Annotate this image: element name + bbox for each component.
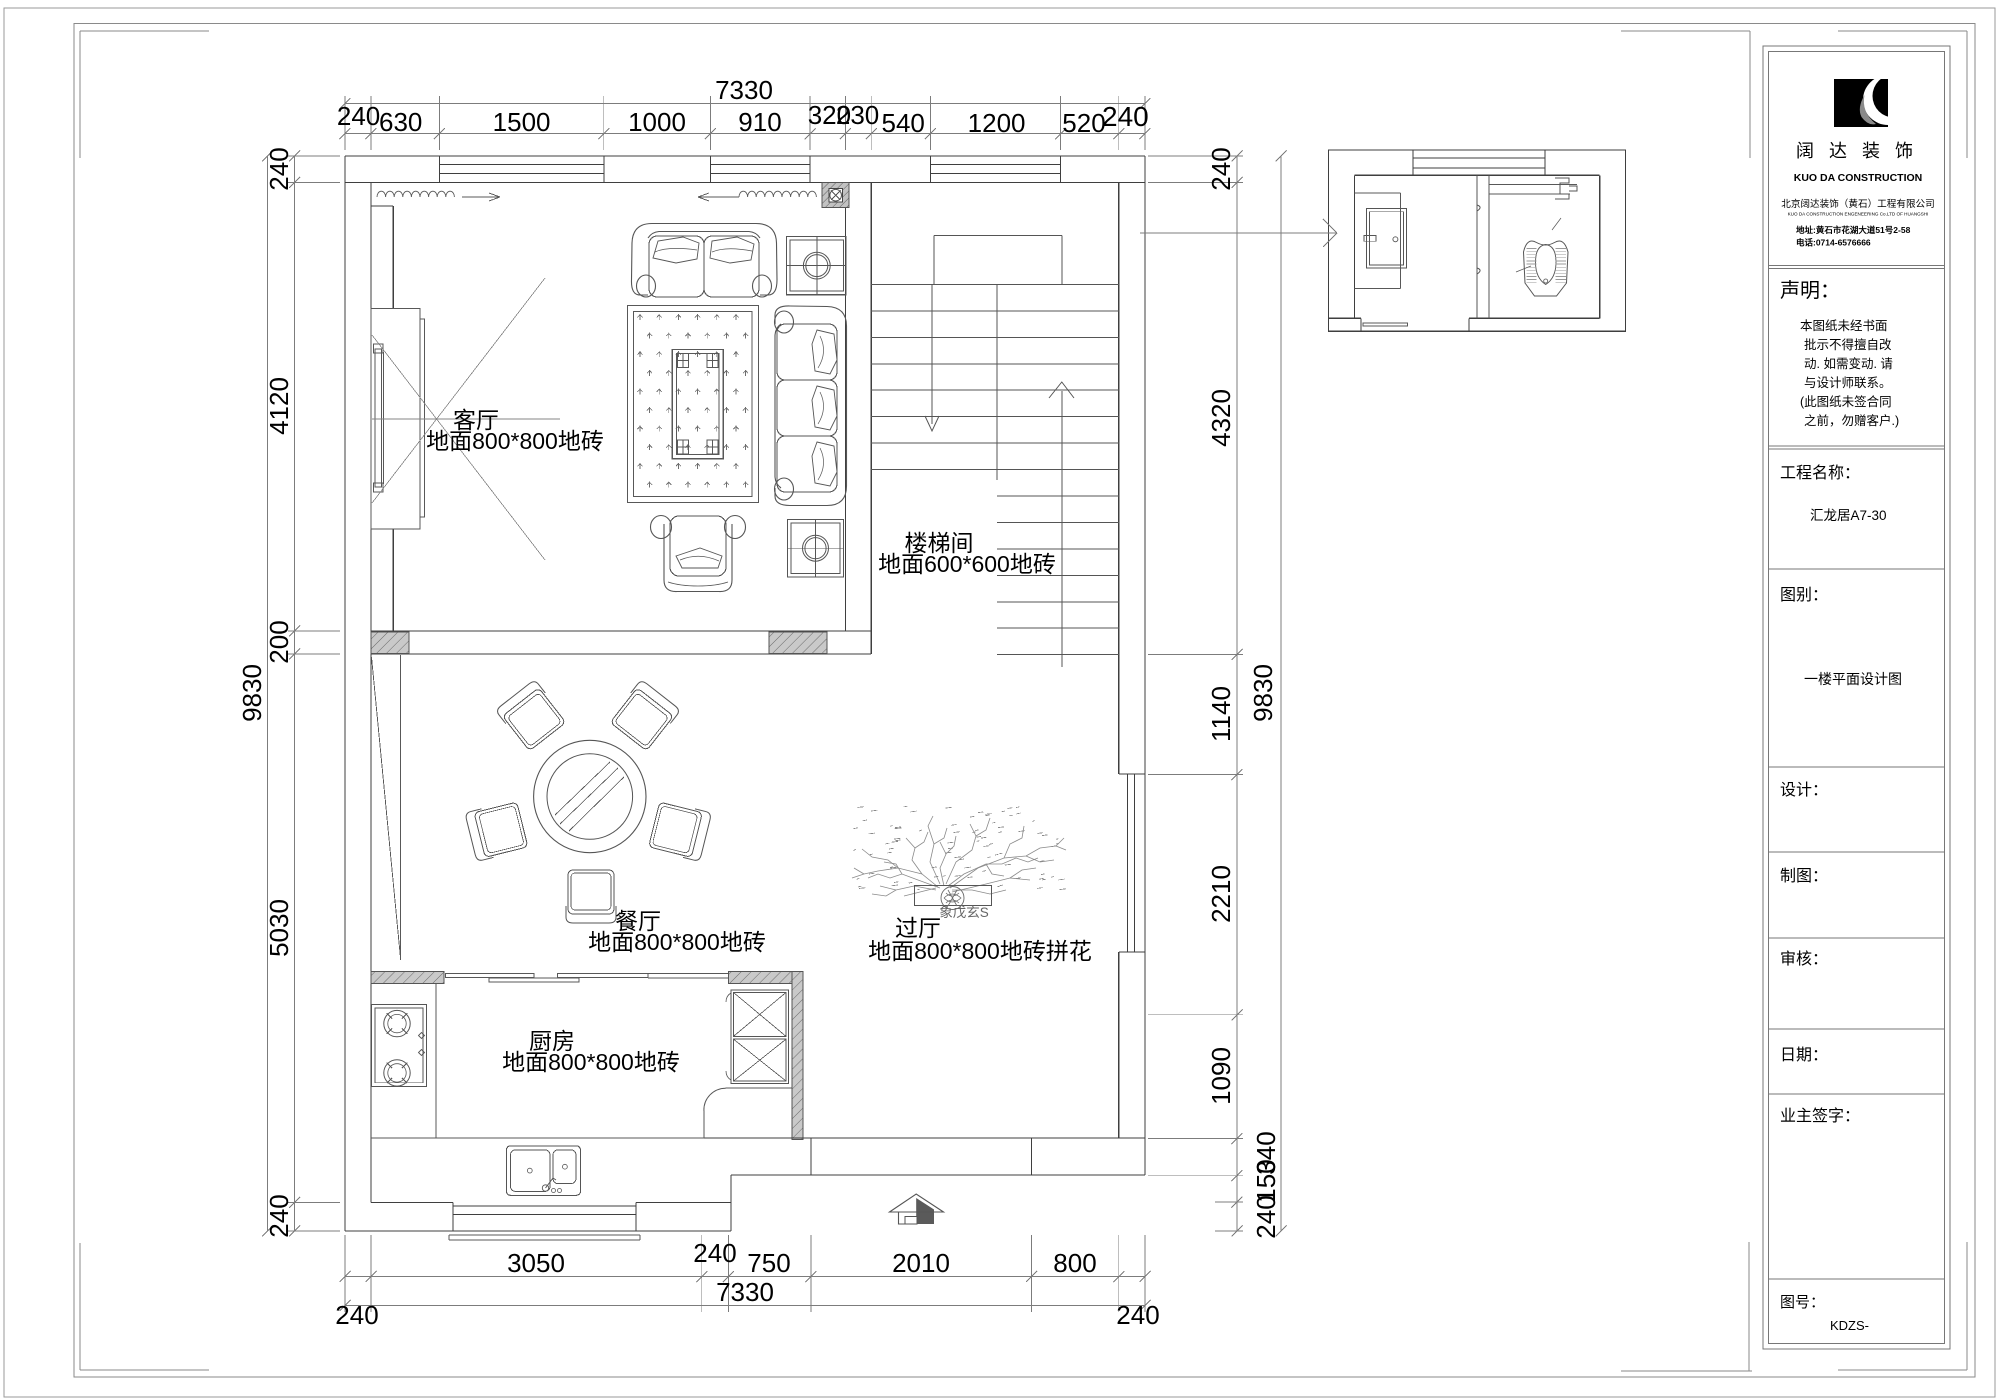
svg-text:审核：: 审核： xyxy=(1780,950,1828,968)
svg-text:630: 630 xyxy=(379,107,422,137)
svg-text:4320: 4320 xyxy=(1206,389,1236,447)
svg-text:1140: 1140 xyxy=(1206,686,1236,742)
svg-text:阔 达 装 饰: 阔 达 装 饰 xyxy=(1796,141,1918,161)
svg-text:1000: 1000 xyxy=(628,107,686,137)
svg-text:240: 240 xyxy=(335,1300,378,1330)
svg-text:1090: 1090 xyxy=(1206,1047,1236,1105)
svg-text:之前，勿赠客户.): 之前，勿赠客户.) xyxy=(1804,413,1899,428)
svg-text:520: 520 xyxy=(1062,108,1105,138)
svg-text:2010: 2010 xyxy=(892,1248,950,1278)
svg-text:9830: 9830 xyxy=(1248,664,1278,722)
svg-text:象戊玄S: 象戊玄S xyxy=(939,904,989,920)
svg-text:1500: 1500 xyxy=(493,107,551,137)
svg-text:230: 230 xyxy=(836,100,879,130)
svg-text:340: 340 xyxy=(1251,1131,1281,1174)
svg-text:2210: 2210 xyxy=(1206,865,1236,923)
svg-text:图别：: 图别： xyxy=(1780,586,1828,604)
svg-text:1200: 1200 xyxy=(968,108,1026,138)
svg-text:制图：: 制图： xyxy=(1780,867,1828,885)
svg-text:地面800*800地砖拼花: 地面800*800地砖拼花 xyxy=(868,938,1092,964)
svg-text:4120: 4120 xyxy=(264,377,294,435)
svg-text:地面800*800地砖: 地面800*800地砖 xyxy=(588,929,766,955)
svg-text:本图纸未经书面: 本图纸未经书面 xyxy=(1800,319,1888,333)
svg-text:240: 240 xyxy=(693,1238,736,1268)
svg-text:批示不得擅自改: 批示不得擅自改 xyxy=(1804,337,1892,352)
svg-text:业主签字：: 业主签字： xyxy=(1780,1107,1860,1125)
svg-text:KUO DA CONSTRUCTION ENGENEERIN: KUO DA CONSTRUCTION ENGENEERING Co.LTD O… xyxy=(1788,212,1929,217)
svg-text:工程名称：: 工程名称： xyxy=(1780,464,1860,482)
svg-text:电话:0714-6576666: 电话:0714-6576666 xyxy=(1796,238,1871,248)
svg-text:3050: 3050 xyxy=(507,1248,565,1278)
svg-text:地面800*800地砖: 地面800*800地砖 xyxy=(502,1049,680,1075)
svg-text:7330: 7330 xyxy=(715,75,773,105)
svg-text:动. 如需变动. 请: 动. 如需变动. 请 xyxy=(1804,356,1893,371)
svg-text:与设计师联系。: 与设计师联系。 xyxy=(1804,375,1892,390)
svg-text:200: 200 xyxy=(264,620,294,663)
svg-text:5030: 5030 xyxy=(264,899,294,957)
svg-text:240: 240 xyxy=(264,147,294,190)
svg-text:KUO DA CONSTRUCTION: KUO DA CONSTRUCTION xyxy=(1794,172,1923,184)
svg-text:240: 240 xyxy=(264,1194,294,1237)
svg-text:声明：: 声明： xyxy=(1780,279,1840,302)
svg-text:9830: 9830 xyxy=(237,664,267,722)
svg-text:910: 910 xyxy=(738,107,781,137)
svg-text:设计：: 设计： xyxy=(1780,781,1828,799)
svg-text:地址:黄石市花湖大道51号2-58: 地址:黄石市花湖大道51号2-58 xyxy=(1796,225,1911,235)
svg-text:240: 240 xyxy=(1102,101,1149,132)
svg-text:KDZS-: KDZS- xyxy=(1830,1318,1869,1333)
svg-text:7330: 7330 xyxy=(716,1277,774,1307)
svg-text:地面600*600地砖: 地面600*600地砖 xyxy=(878,551,1056,577)
svg-text:240: 240 xyxy=(1116,1300,1159,1330)
svg-text:750: 750 xyxy=(747,1248,790,1278)
svg-text:地面800*800地砖: 地面800*800地砖 xyxy=(426,428,604,454)
svg-text:240: 240 xyxy=(337,101,380,131)
svg-text:240: 240 xyxy=(1206,147,1236,190)
svg-text:800: 800 xyxy=(1053,1248,1096,1278)
svg-text:(此图纸未签合同: (此图纸未签合同 xyxy=(1800,394,1892,409)
svg-text:一楼平面设计图: 一楼平面设计图 xyxy=(1804,671,1902,687)
svg-text:图号：: 图号： xyxy=(1780,1294,1825,1311)
svg-text:540: 540 xyxy=(882,108,925,138)
svg-text:北京阔达装饰（黄石）工程有限公司: 北京阔达装饰（黄石）工程有限公司 xyxy=(1781,198,1935,210)
svg-text:汇龙居A7-30: 汇龙居A7-30 xyxy=(1810,508,1887,523)
svg-text:日期：: 日期： xyxy=(1780,1046,1828,1064)
